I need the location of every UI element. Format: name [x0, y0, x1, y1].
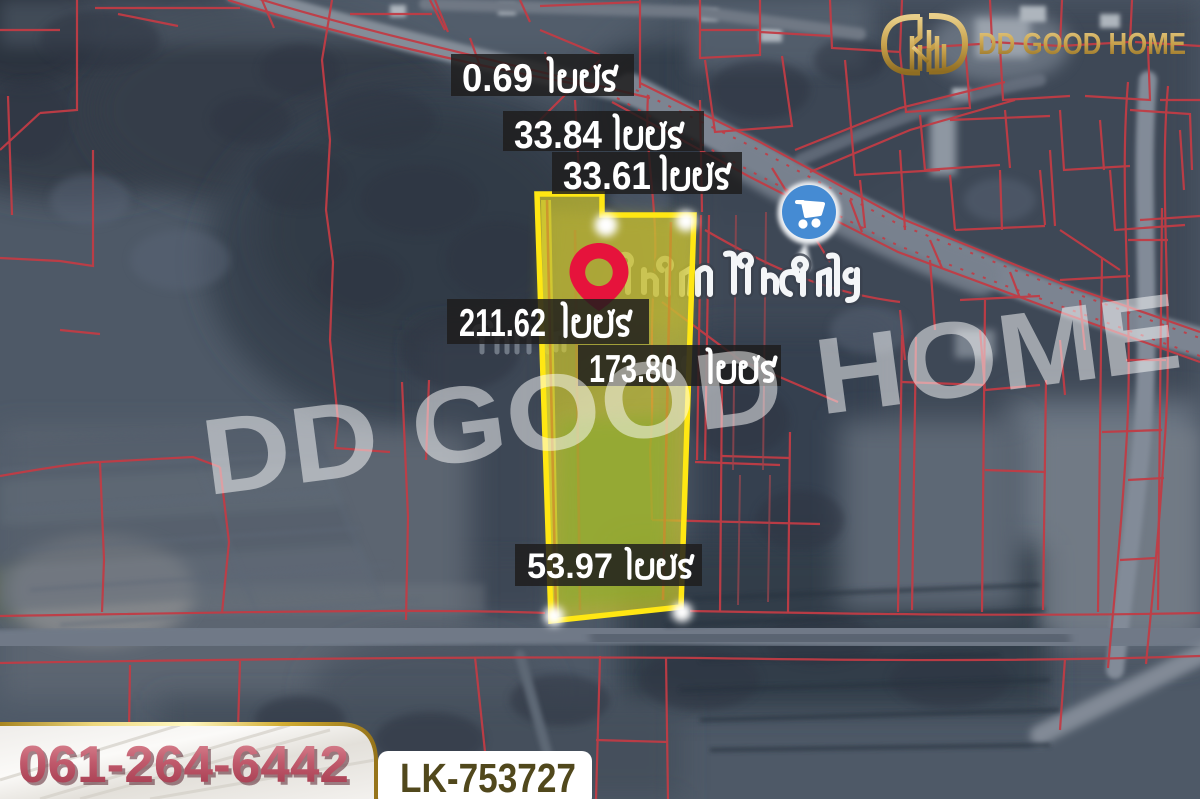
svg-text:0.69: 0.69: [462, 57, 533, 100]
svg-text:33.84: 33.84: [514, 114, 602, 157]
svg-text:DD GOOD HOME: DD GOOD HOME: [978, 26, 1186, 61]
svg-text:061-264-6442: 061-264-6442: [18, 736, 349, 794]
svg-text:211.62: 211.62: [459, 302, 546, 345]
svg-text:LK-753727: LK-753727: [400, 755, 576, 799]
svg-text:33.61: 33.61: [563, 155, 651, 198]
svg-text:53.97: 53.97: [527, 547, 613, 586]
